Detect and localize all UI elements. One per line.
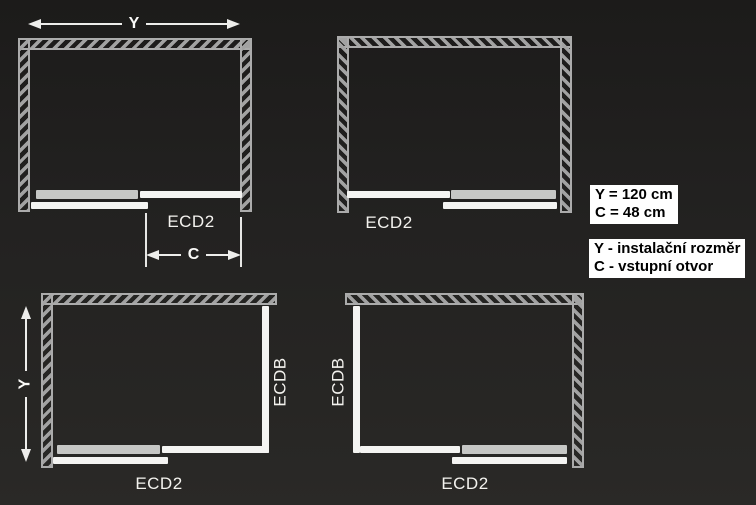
legend-line-y: Y - instalační rozměr xyxy=(594,240,740,258)
fixed-glass-panel xyxy=(140,191,242,198)
shower-enclosure-spec-sheet: Y ECD2 C ECD2 Y = 120 cm C = 48 cm Y - i… xyxy=(0,0,756,505)
arrow-down-icon xyxy=(21,449,31,462)
fixed-glass-panel xyxy=(36,190,138,199)
legend-box: Y - instalační rozměr C - vstupní otvor xyxy=(589,239,745,278)
arrow-left-icon xyxy=(28,19,41,29)
wall-right xyxy=(560,36,572,213)
model-label-ecdb-text: ECDB xyxy=(271,357,291,406)
wall-right xyxy=(572,293,584,468)
dimension-line xyxy=(159,254,181,256)
fixed-glass-panel xyxy=(451,190,556,199)
model-label-ecd2: ECD2 xyxy=(155,212,227,232)
model-label-ecdb: ECDB xyxy=(326,351,352,413)
model-label-ecd2: ECD2 xyxy=(353,213,425,233)
fixed-glass-panel xyxy=(462,445,567,454)
sliding-door-panel xyxy=(443,202,557,209)
sliding-door-panel xyxy=(452,457,567,464)
model-label-ecd2: ECD2 xyxy=(429,474,501,494)
wall-top xyxy=(18,38,252,50)
arrow-right-icon xyxy=(228,250,241,260)
wall-left xyxy=(337,36,349,213)
wall-right xyxy=(240,38,252,212)
model-label-ecdb: ECDB xyxy=(268,351,294,413)
fixed-glass-panel xyxy=(360,446,460,453)
dimension-label-c: C xyxy=(188,247,200,263)
dimension-arrow-y-horizontal: Y xyxy=(28,17,240,31)
model-label-ecd2: ECD2 xyxy=(123,474,195,494)
spec-line-c: C = 48 cm xyxy=(595,204,673,222)
wall-top xyxy=(41,293,277,305)
dimension-arrow-c: C xyxy=(146,248,241,262)
legend-line-c: C - vstupní otvor xyxy=(594,258,740,276)
side-panel-ecdb xyxy=(353,306,360,453)
wall-top xyxy=(337,36,572,48)
spec-line-y: Y = 120 cm xyxy=(595,186,673,204)
dimension-line xyxy=(146,23,227,25)
dimension-line xyxy=(25,319,27,371)
wall-top xyxy=(345,293,584,305)
sliding-door-panel xyxy=(53,457,168,464)
fixed-glass-panel xyxy=(57,445,160,454)
fixed-glass-panel xyxy=(162,446,269,453)
arrow-right-icon xyxy=(227,19,240,29)
arrow-up-icon xyxy=(21,306,31,319)
sliding-door-panel xyxy=(31,202,148,209)
dimension-label-y: Y xyxy=(129,16,140,32)
arrow-left-icon xyxy=(146,250,159,260)
dimension-label-y: Y xyxy=(17,379,33,390)
dimension-line xyxy=(41,23,122,25)
fixed-glass-panel xyxy=(347,191,450,198)
wall-left xyxy=(41,293,53,468)
spec-box: Y = 120 cm C = 48 cm xyxy=(590,185,678,224)
dimension-arrow-y-vertical: Y xyxy=(19,306,32,462)
model-label-ecdb-text: ECDB xyxy=(329,357,349,406)
wall-left xyxy=(18,38,30,212)
dimension-line xyxy=(25,397,27,449)
dimension-line xyxy=(206,254,228,256)
